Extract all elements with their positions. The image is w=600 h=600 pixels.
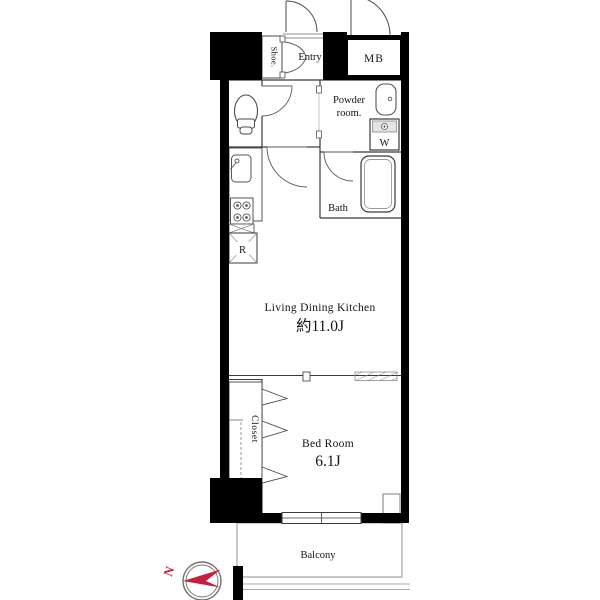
bedroom-name-label: Bed Room xyxy=(302,438,354,450)
mb-label: MB xyxy=(364,53,384,65)
powder-door-jamb-top xyxy=(317,86,322,93)
floor-plan-svg: N xyxy=(0,0,600,600)
entry-label: Entry xyxy=(298,52,322,63)
shoe-door-jamb-bottom xyxy=(280,72,285,78)
balcony-label: Balcony xyxy=(301,550,337,561)
canvas-background xyxy=(0,0,600,600)
ldk-size-label: 約11.0J xyxy=(296,317,344,335)
kitchen-counter xyxy=(229,148,262,233)
vanity-basin xyxy=(376,84,396,115)
powder-room-label-line2: room. xyxy=(337,108,362,119)
wall-bottom-left-block xyxy=(210,478,262,523)
wall-left xyxy=(220,80,229,478)
wall-top-left-block xyxy=(210,32,262,80)
wall-right xyxy=(401,32,409,523)
shoe-door-jamb-top xyxy=(280,36,285,42)
bath-label: Bath xyxy=(328,203,349,214)
sliding-door-stop xyxy=(303,372,310,381)
ldk-name-label: Living Dining Kitchen xyxy=(264,302,375,314)
washer-label: W xyxy=(380,138,390,149)
wall-bottom-right-segment xyxy=(361,513,401,523)
stove-outline xyxy=(231,198,254,224)
powder-room-label-line1: Powder xyxy=(333,95,366,106)
bedroom-size-label: 6.1J xyxy=(315,453,340,470)
balcony-wall-pillar xyxy=(233,566,243,600)
bedroom-window xyxy=(282,513,361,524)
toilet-base xyxy=(240,127,252,134)
closet-label: Closet xyxy=(249,415,259,443)
wall-bottom-left-segment xyxy=(262,513,282,523)
powder-door-jamb-bottom xyxy=(317,131,322,138)
powder-sink xyxy=(376,84,396,115)
shoe-label: Shoe. xyxy=(270,46,280,67)
washer-tap-dot xyxy=(383,125,385,127)
kitchen-sink xyxy=(232,155,252,182)
refrigerator-label: R xyxy=(239,245,246,256)
floor-plan-page: N xyxy=(0,0,600,600)
bathtub xyxy=(361,156,395,212)
sliding-door-track xyxy=(355,372,397,381)
bathtub-outer xyxy=(361,156,395,212)
